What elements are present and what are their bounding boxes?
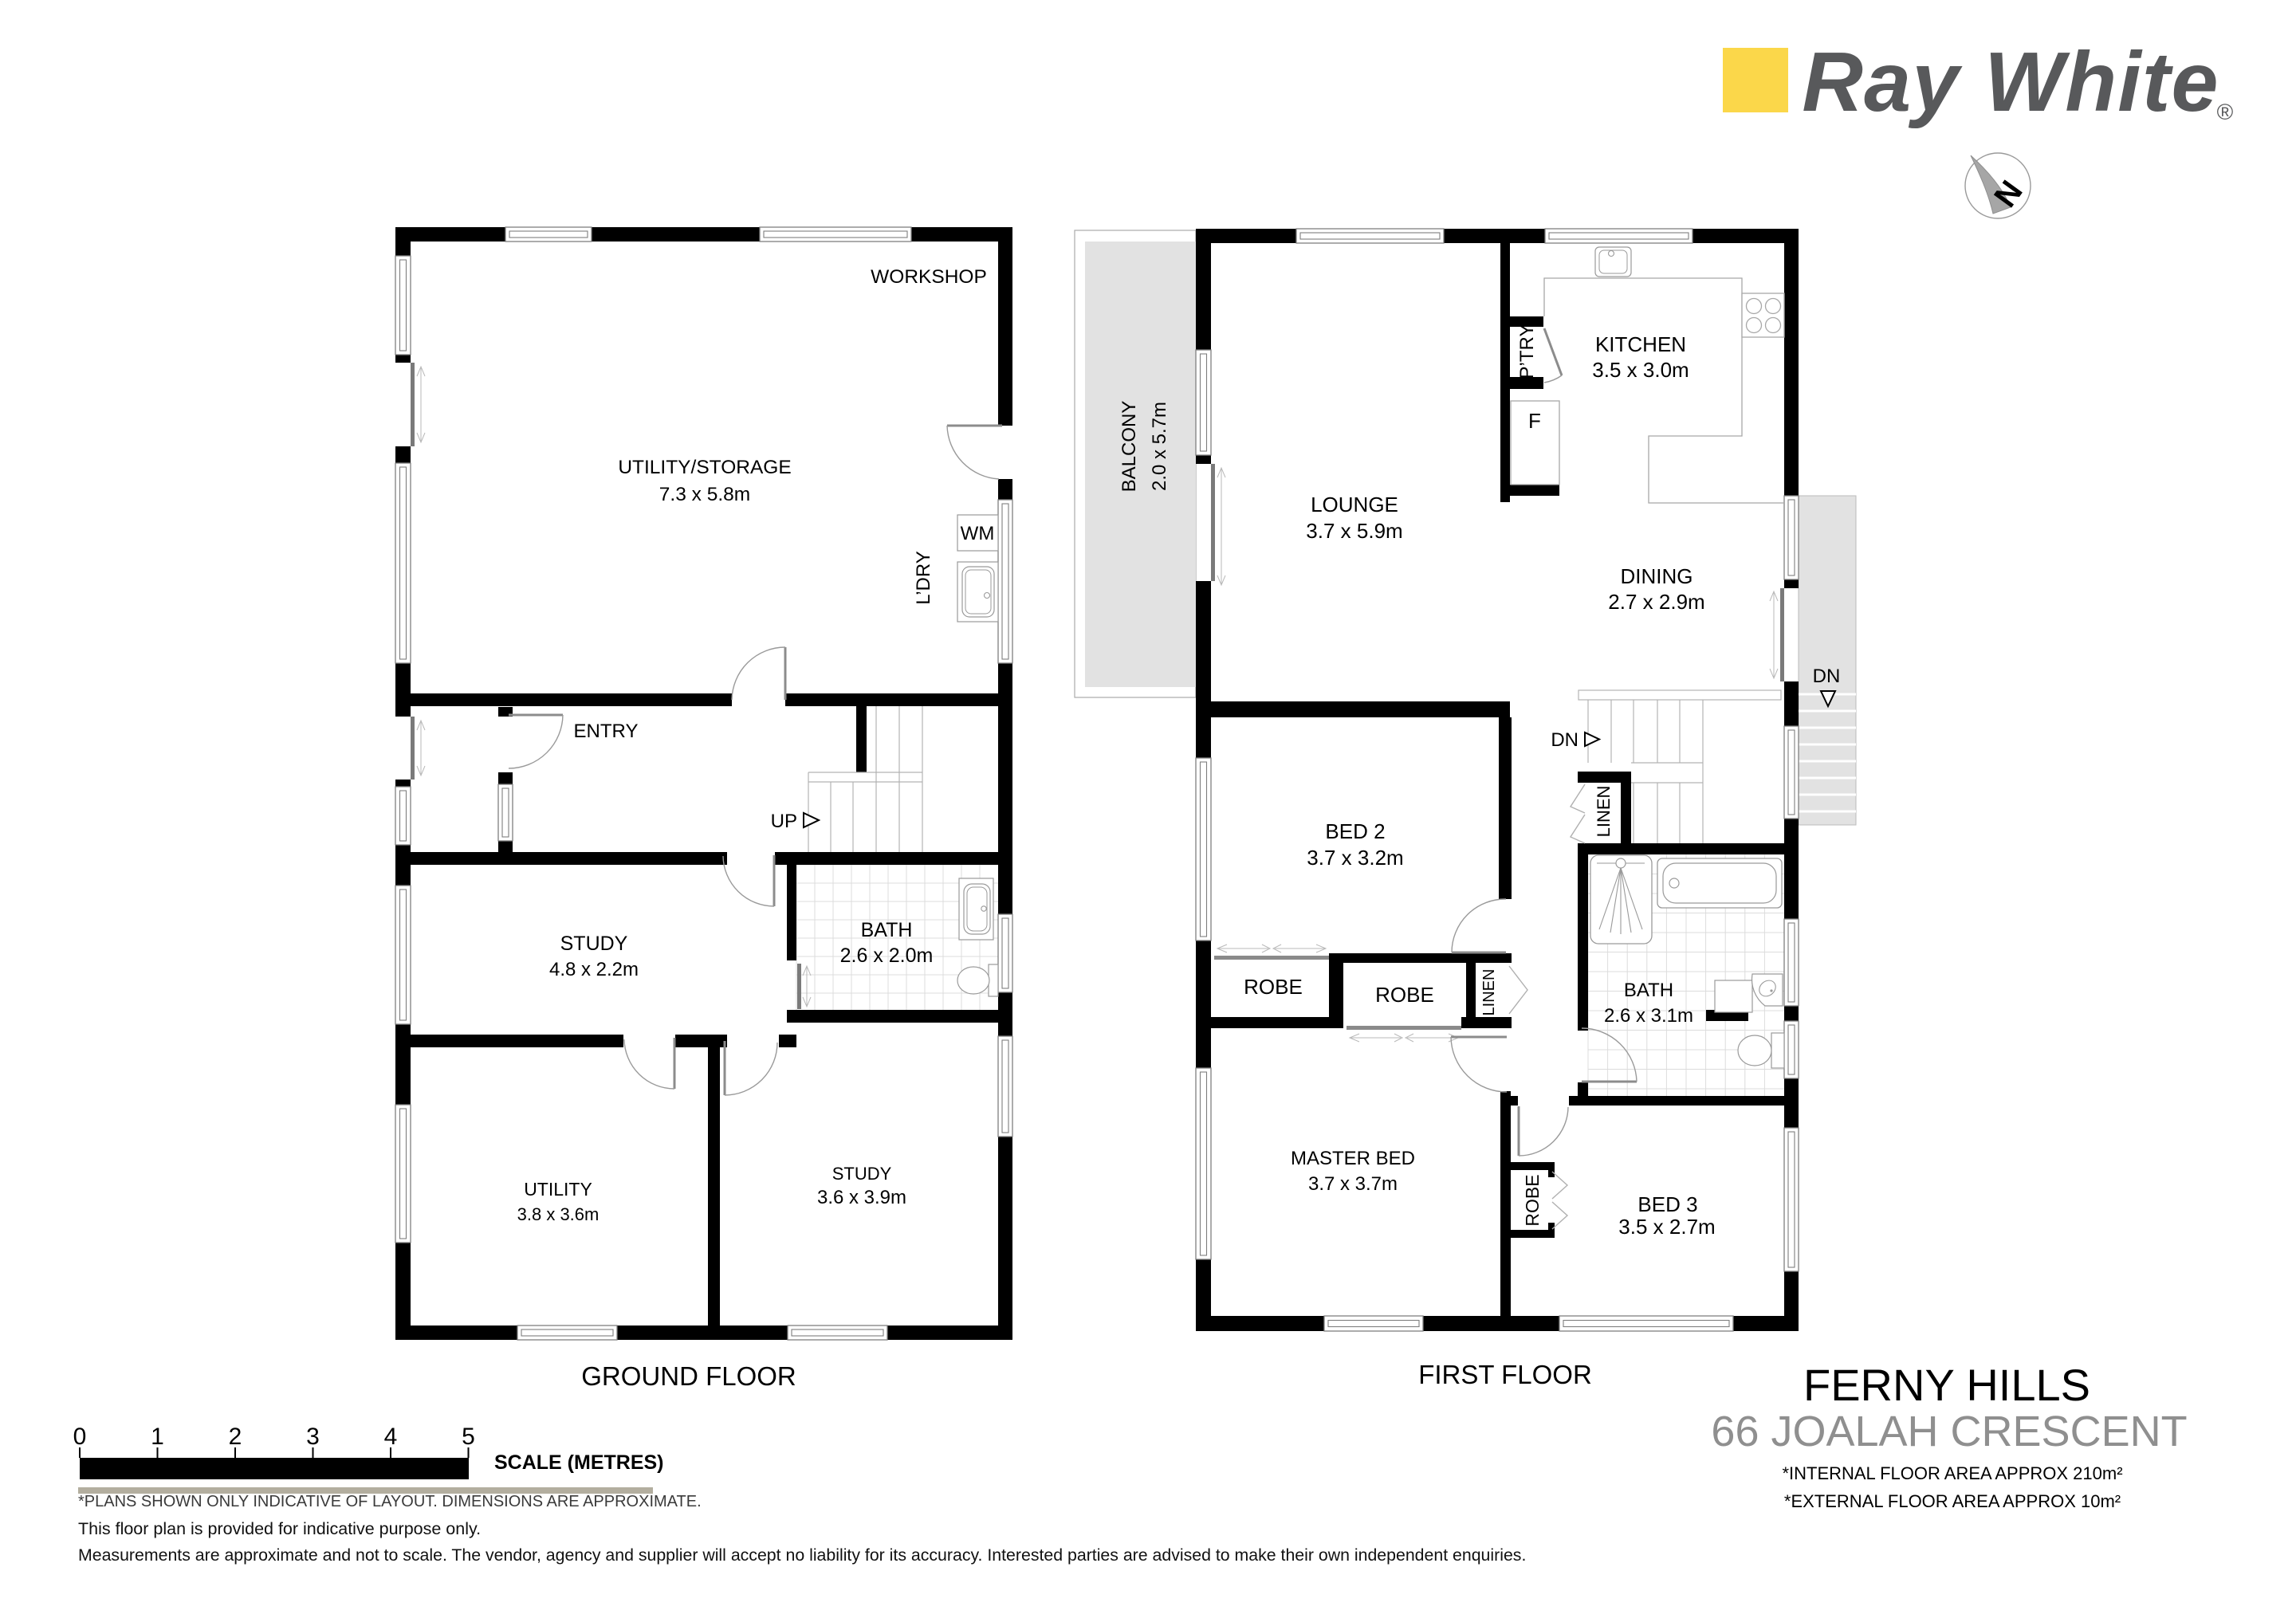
svg-text:MASTER BED: MASTER BED <box>1291 1148 1415 1169</box>
svg-text:L’DRY: L’DRY <box>913 551 934 605</box>
svg-text:ENTRY: ENTRY <box>574 721 639 742</box>
svg-text:ROBE: ROBE <box>1375 983 1434 1007</box>
svg-text:3.8 x 3.6m: 3.8 x 3.6m <box>517 1204 600 1224</box>
svg-text:BALCONY: BALCONY <box>1119 401 1140 493</box>
svg-text:BATH: BATH <box>861 919 913 941</box>
svg-text:3.6 x 3.9m: 3.6 x 3.9m <box>817 1187 906 1208</box>
svg-text:7.3 x 5.8m: 7.3 x 5.8m <box>659 484 750 505</box>
svg-text:ROBE: ROBE <box>1522 1174 1543 1226</box>
svg-text:LINEN: LINEN <box>1480 969 1498 1016</box>
svg-text:WM: WM <box>961 523 995 544</box>
svg-text:1: 1 <box>151 1424 164 1450</box>
svg-text:UTILITY: UTILITY <box>524 1179 592 1200</box>
svg-text:2.0 x 5.7m: 2.0 x 5.7m <box>1149 402 1170 491</box>
svg-text:*INTERNAL FLOOR AREA APPROX 21: *INTERNAL FLOOR AREA APPROX 210m² <box>1782 1463 2122 1483</box>
svg-text:P’TRY: P’TRY <box>1516 324 1538 379</box>
svg-text:4: 4 <box>384 1424 398 1450</box>
svg-text:2.6 x 3.1m: 2.6 x 3.1m <box>1604 1005 1693 1027</box>
svg-text:®: ® <box>2217 100 2234 124</box>
svg-text:DN: DN <box>1551 729 1578 751</box>
svg-text:3.5 x 2.7m: 3.5 x 2.7m <box>1618 1215 1715 1239</box>
svg-text:UTILITY/STORAGE: UTILITY/STORAGE <box>618 457 791 478</box>
svg-text:2.7 x 2.9m: 2.7 x 2.9m <box>1608 590 1704 614</box>
svg-text:66 JOALAH CRESCENT: 66 JOALAH CRESCENT <box>1711 1408 2187 1455</box>
svg-text:KITCHEN: KITCHEN <box>1595 332 1686 356</box>
svg-text:STUDY: STUDY <box>560 933 628 955</box>
svg-text:UP: UP <box>771 811 797 832</box>
svg-text:STUDY: STUDY <box>832 1164 892 1184</box>
svg-text:LOUNGE: LOUNGE <box>1311 493 1398 516</box>
svg-text:*PLANS SHOWN ONLY INDICATIVE O: *PLANS SHOWN ONLY INDICATIVE OF LAYOUT. … <box>78 1493 702 1510</box>
svg-text:GROUND FLOOR: GROUND FLOOR <box>581 1361 796 1391</box>
svg-text:2.6 x 2.0m: 2.6 x 2.0m <box>840 945 934 967</box>
svg-text:FERNY HILLS: FERNY HILLS <box>1803 1360 2090 1410</box>
svg-text:WORKSHOP: WORKSHOP <box>871 266 987 288</box>
svg-text:BATH: BATH <box>1624 980 1673 1001</box>
svg-text:SCALE (METRES): SCALE (METRES) <box>494 1451 664 1474</box>
svg-text:*EXTERNAL FLOOR AREA APPROX 10: *EXTERNAL FLOOR AREA APPROX 10m² <box>1784 1491 2121 1511</box>
svg-text:3.7 x 3.2m: 3.7 x 3.2m <box>1307 846 1403 870</box>
svg-text:BED 2: BED 2 <box>1325 819 1385 843</box>
svg-text:FIRST FLOOR: FIRST FLOOR <box>1418 1360 1592 1389</box>
svg-text:3.5 x 3.0m: 3.5 x 3.0m <box>1592 358 1689 382</box>
svg-text:BED 3: BED 3 <box>1637 1192 1697 1216</box>
svg-text:3: 3 <box>306 1424 320 1450</box>
svg-text:LINEN: LINEN <box>1594 786 1614 838</box>
svg-text:3.7 x 3.7m: 3.7 x 3.7m <box>1308 1173 1398 1195</box>
svg-text:DN: DN <box>1813 666 1841 687</box>
svg-text:DINING: DINING <box>1621 564 1693 588</box>
svg-text:0: 0 <box>73 1424 87 1450</box>
svg-text:4.8 x 2.2m: 4.8 x 2.2m <box>549 959 639 980</box>
svg-text:5: 5 <box>462 1424 475 1450</box>
svg-text:ROBE: ROBE <box>1244 975 1303 999</box>
svg-text:Measurements are approximate a: Measurements are approximate and not to … <box>78 1545 1526 1565</box>
svg-text:2: 2 <box>229 1424 242 1450</box>
svg-text:3.7 x 5.9m: 3.7 x 5.9m <box>1306 519 1402 543</box>
svg-text:This floor plan is provided fo: This floor plan is provided for indicati… <box>78 1519 481 1538</box>
svg-text:Ray White: Ray White <box>1802 35 2219 129</box>
svg-text:F: F <box>1528 409 1541 433</box>
